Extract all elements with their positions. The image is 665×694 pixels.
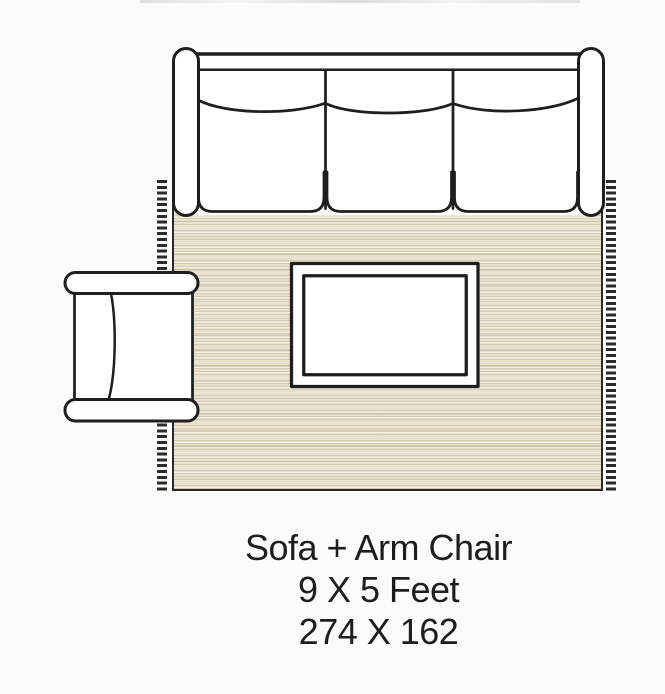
sofa-arm-right <box>579 49 604 216</box>
caption-size-numeric: 274 X 162 <box>46 611 665 653</box>
caption: Sofa + Arm Chair 9 X 5 Feet 274 X 162 <box>46 527 665 653</box>
table-inner-edge <box>304 276 467 375</box>
sofa-icon <box>174 49 604 216</box>
caption-title: Sofa + Arm Chair <box>46 527 665 569</box>
sofa-body <box>174 49 604 216</box>
furniture-layer <box>0 0 665 520</box>
arm-chair-icon <box>65 273 198 422</box>
caption-size-feet: 9 X 5 Feet <box>46 569 665 611</box>
coffee-table-icon <box>292 264 479 387</box>
chair-body <box>75 283 193 411</box>
chair-arm-top <box>65 273 198 294</box>
sofa-arm-left <box>174 49 199 216</box>
rug-layout-diagram: Sofa + Arm Chair 9 X 5 Feet 274 X 162 <box>0 0 665 694</box>
chair-arm-bottom <box>65 400 198 422</box>
